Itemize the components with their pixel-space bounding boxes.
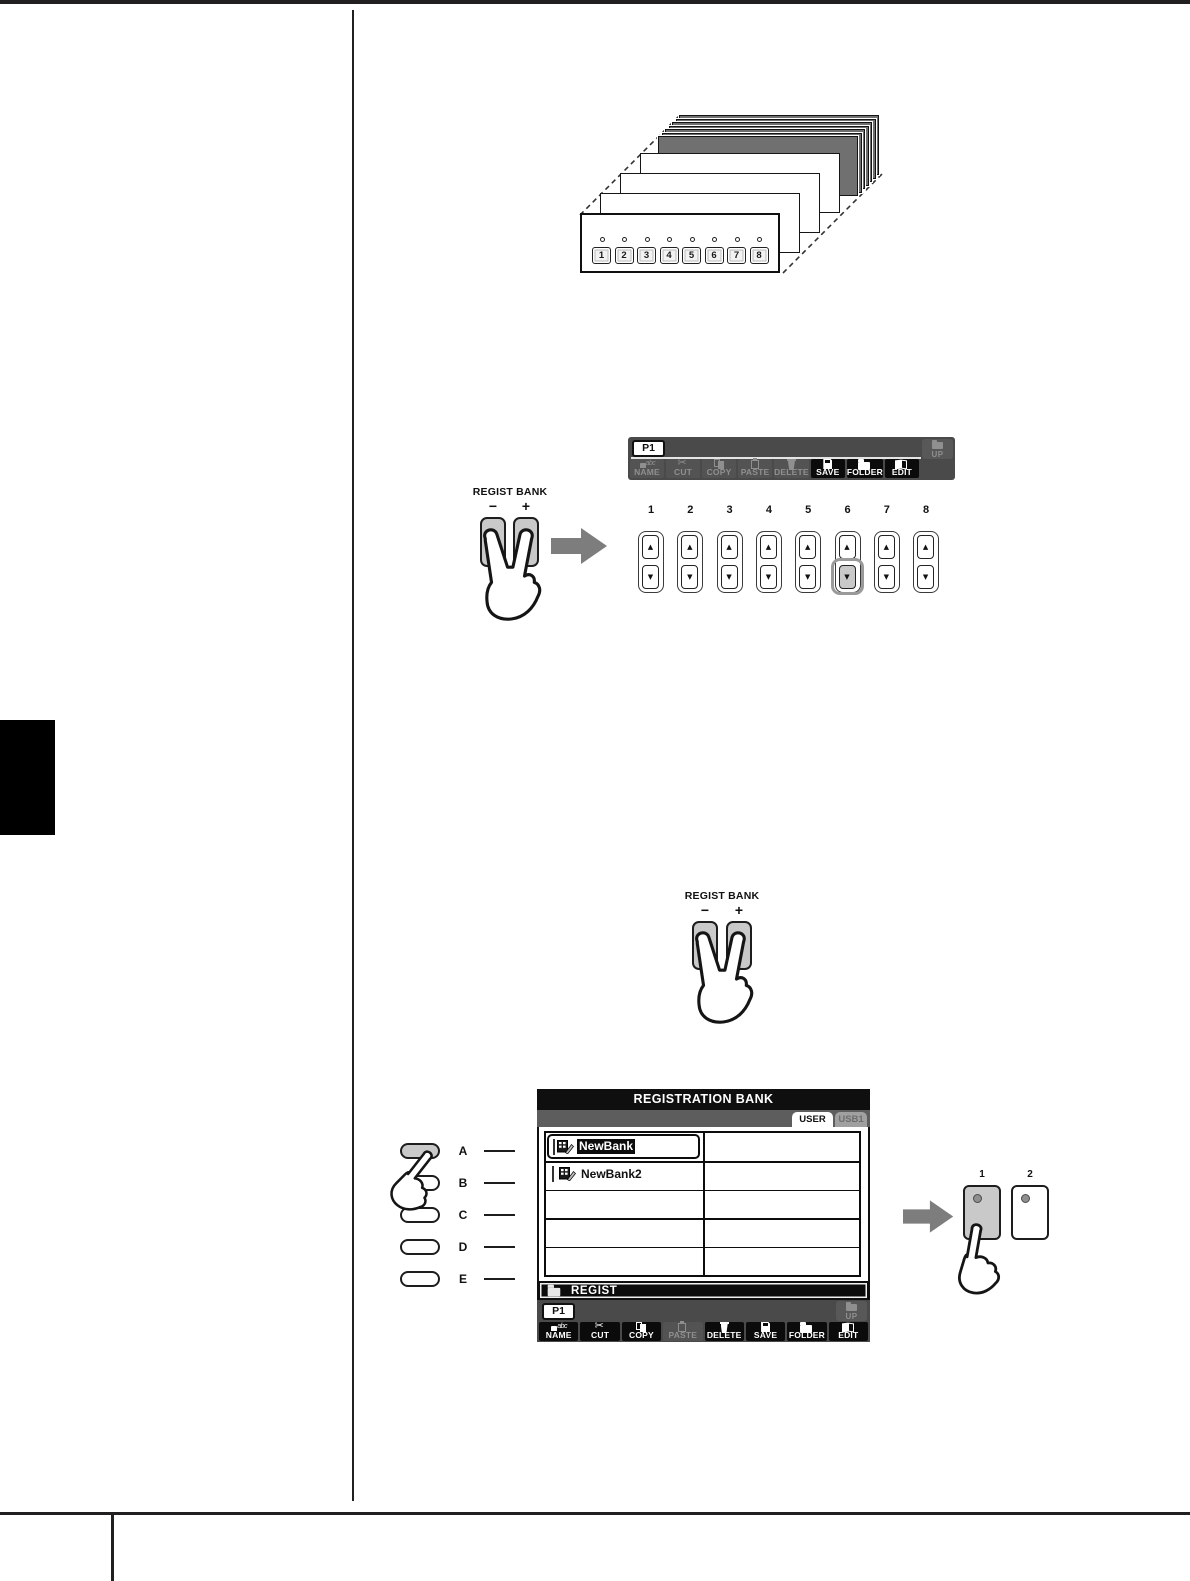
down-arrow-button[interactable]: ▼	[878, 565, 895, 589]
up-button[interactable]: UP	[836, 1301, 867, 1321]
tab-user[interactable]: USER	[792, 1112, 833, 1127]
display-select-button-e[interactable]	[400, 1271, 440, 1287]
up-arrow-button[interactable]: ▲	[642, 535, 659, 559]
name-label: NAME	[634, 468, 660, 477]
registration-bank-icon	[557, 1140, 574, 1154]
memory-button-7[interactable]: 7	[727, 247, 746, 264]
page-top-rule	[0, 0, 1190, 4]
edit-book-icon	[894, 459, 909, 468]
number-label-5: 5	[795, 504, 821, 516]
flow-arrow	[903, 1198, 955, 1235]
bank-stack-illustration: 1 2 3 4 5 6 7 8	[555, 105, 900, 300]
tab-bar: USER USB1	[537, 1110, 870, 1127]
updown-capsule-5: ▲ ▼	[795, 531, 821, 593]
grid-line	[546, 1218, 859, 1220]
up-button[interactable]: UP	[922, 439, 953, 459]
memory-led	[600, 237, 605, 242]
memory-button-3[interactable]: 3	[637, 247, 656, 264]
up-arrow-button[interactable]: ▲	[917, 535, 934, 559]
leader-line	[484, 1246, 515, 1248]
pointing-hand-illustration	[369, 1137, 460, 1231]
minus-sign: −	[480, 499, 506, 513]
label-d: D	[456, 1240, 470, 1254]
updown-capsule-3: ▲ ▼	[717, 531, 743, 593]
memory-led	[712, 237, 717, 242]
delete-button[interactable]: DELETE	[774, 459, 809, 478]
screen-title: REGISTRATION BANK	[537, 1089, 870, 1110]
two-finger-hand-illustration	[461, 528, 547, 626]
selected-file-cell[interactable]: NewBank	[547, 1134, 700, 1159]
updown-capsule-8: ▲ ▼	[913, 531, 939, 593]
up-arrow-button[interactable]: ▲	[760, 535, 777, 559]
page-tab-p1[interactable]: P1	[632, 440, 665, 457]
tab-usb1[interactable]: USB1	[835, 1112, 867, 1127]
number-label-3: 3	[717, 504, 743, 516]
leader-line	[484, 1150, 515, 1152]
file-cell[interactable]: NewBank2	[552, 1166, 644, 1182]
name-abc-icon	[640, 459, 655, 468]
folder-icon	[857, 459, 872, 468]
file-toolbar: P1 UP NAME CUT COPY PASTE	[628, 437, 955, 480]
number-label-6: 6	[835, 504, 861, 516]
updown-capsule-2: ▲ ▼	[677, 531, 703, 593]
name-button[interactable]: NAME	[630, 459, 664, 478]
chapter-index-tab	[0, 720, 55, 835]
floppy-disk-icon	[758, 1322, 773, 1331]
paste-icon	[748, 459, 763, 468]
name-abc-icon	[551, 1322, 566, 1331]
up-folder-icon	[844, 1302, 859, 1313]
cut-button[interactable]: CUT	[666, 459, 700, 478]
file-name: NewBank	[577, 1139, 635, 1154]
copy-button[interactable]: COPY	[702, 459, 736, 478]
number-label-1: 1	[638, 504, 664, 516]
page-tab-p1[interactable]: P1	[542, 1303, 575, 1320]
up-arrow-button[interactable]: ▲	[839, 535, 856, 559]
current-folder-bar: REGIST	[540, 1283, 867, 1298]
copy-button[interactable]: COPY	[622, 1322, 661, 1341]
floppy-disk-icon	[820, 459, 835, 468]
cut-label: CUT	[674, 468, 692, 477]
memory-led	[973, 1194, 982, 1203]
item-spine	[552, 1166, 554, 1182]
item-spine	[553, 1139, 555, 1155]
number-label-7: 7	[874, 504, 900, 516]
save-button[interactable]: SAVE	[811, 459, 845, 478]
down-arrow-button[interactable]: ▼	[760, 565, 777, 589]
label-e: E	[456, 1272, 470, 1286]
memory-led	[667, 237, 672, 242]
memory-button-1[interactable]: 1	[592, 247, 611, 264]
trash-icon	[717, 1322, 732, 1331]
memory-led	[622, 237, 627, 242]
grid-line	[546, 1161, 859, 1163]
plus-sign: +	[726, 903, 752, 917]
registration-bank-icon	[559, 1167, 576, 1181]
down-arrow-button[interactable]: ▼	[681, 565, 698, 589]
updown-capsule-4: ▲ ▼	[756, 531, 782, 593]
file-name: NewBank2	[579, 1167, 644, 1182]
leader-line	[484, 1182, 515, 1184]
edit-button[interactable]: EDIT	[885, 459, 919, 478]
save-label: SAVE	[754, 1331, 777, 1340]
label-2: 2	[1011, 1169, 1049, 1180]
memory-led	[690, 237, 695, 242]
bank-panel-front: 1 2 3 4 5 6 7 8	[580, 213, 780, 273]
name-label: NAME	[546, 1331, 572, 1340]
save-label: SAVE	[816, 468, 839, 477]
memory-led	[1021, 1194, 1030, 1203]
scissors-icon	[593, 1322, 608, 1331]
up-arrow-button[interactable]: ▲	[721, 535, 738, 559]
folder-button[interactable]: FOLDER	[787, 1322, 826, 1341]
regist-bank-label: REGIST BANK	[682, 890, 762, 902]
scissors-icon	[676, 459, 691, 468]
regist-bank-label: REGIST BANK	[470, 486, 550, 498]
down-arrow-button[interactable]: ▼	[917, 565, 934, 589]
minus-sign: −	[692, 903, 718, 917]
paste-button[interactable]: PASTE	[663, 1322, 702, 1341]
column-divider	[352, 10, 354, 1501]
folder-icon	[799, 1322, 814, 1331]
paste-label: PASTE	[741, 468, 770, 477]
grid-line	[703, 1133, 705, 1275]
footer-divider	[111, 1515, 114, 1581]
cut-label: CUT	[591, 1331, 609, 1340]
number-label-4: 4	[756, 504, 782, 516]
paste-label: PASTE	[668, 1331, 697, 1340]
number-label-2: 2	[677, 504, 703, 516]
current-folder-name: REGIST	[571, 1285, 617, 1297]
plus-sign: +	[513, 499, 539, 513]
leader-line	[484, 1214, 515, 1216]
memory-button-6[interactable]: 6	[705, 247, 724, 264]
up-arrow-button[interactable]: ▲	[878, 535, 895, 559]
up-arrow-button[interactable]: ▲	[799, 535, 816, 559]
edit-book-icon	[841, 1322, 856, 1331]
label-1: 1	[963, 1169, 1001, 1180]
memory-button-8[interactable]: 8	[750, 247, 769, 264]
number-label-8: 8	[913, 504, 939, 516]
down-arrow-button[interactable]: ▼	[799, 565, 816, 589]
down-arrow-button[interactable]: ▼	[721, 565, 738, 589]
screen-toolbar: P1 UP NAME CUT COPY	[537, 1300, 870, 1342]
folder-icon	[547, 1285, 563, 1297]
memory-button-2[interactable]: 2	[615, 247, 634, 264]
up-label: UP	[932, 451, 944, 459]
paste-icon	[675, 1322, 690, 1331]
label-c: C	[456, 1208, 470, 1222]
copy-pages-icon	[634, 1322, 649, 1331]
leader-line	[484, 1278, 515, 1280]
selection-highlight-ring	[831, 558, 864, 595]
paste-button[interactable]: PASTE	[738, 459, 772, 478]
file-grid: NewBank NewBank2	[544, 1131, 861, 1277]
manual-page: 1 2 3 4 5 6 7 8 P1 UP NAME CUT	[0, 0, 1190, 1581]
updown-capsule-7: ▲ ▼	[874, 531, 900, 593]
down-arrow-button[interactable]: ▼	[642, 565, 659, 589]
memory-button-4[interactable]: 4	[660, 247, 679, 264]
grid-line	[546, 1247, 859, 1249]
registration-bank-screen: REGISTRATION BANK USER USB1	[537, 1089, 870, 1342]
file-list: NewBank NewBank2	[539, 1127, 868, 1281]
memory-led	[735, 237, 740, 242]
up-arrow-button[interactable]: ▲	[681, 535, 698, 559]
memory-button-5[interactable]: 5	[682, 247, 701, 264]
label-b: B	[456, 1176, 470, 1190]
copy-label: COPY	[629, 1331, 654, 1340]
grid-line	[546, 1190, 859, 1192]
edit-button[interactable]: EDIT	[829, 1322, 868, 1341]
delete-button[interactable]: DELETE	[705, 1322, 744, 1341]
copy-pages-icon	[712, 459, 727, 468]
flow-arrow	[551, 526, 609, 566]
up-folder-icon	[930, 440, 945, 451]
folder-button[interactable]: FOLDER	[847, 459, 883, 478]
display-select-button-d[interactable]	[400, 1239, 440, 1255]
updown-capsule-1: ▲ ▼	[638, 531, 664, 593]
save-button[interactable]: SAVE	[746, 1322, 785, 1341]
copy-label: COPY	[707, 468, 732, 477]
name-button[interactable]: NAME	[539, 1322, 578, 1341]
memory-led	[645, 237, 650, 242]
pointing-hand-illustration	[940, 1217, 1017, 1309]
cut-button[interactable]: CUT	[580, 1322, 619, 1341]
two-finger-hand-illustration	[673, 931, 759, 1029]
trash-icon	[784, 459, 799, 468]
footer-rule	[0, 1512, 1190, 1515]
up-label: UP	[846, 1313, 858, 1321]
memory-led	[757, 237, 762, 242]
label-a: A	[456, 1144, 470, 1158]
